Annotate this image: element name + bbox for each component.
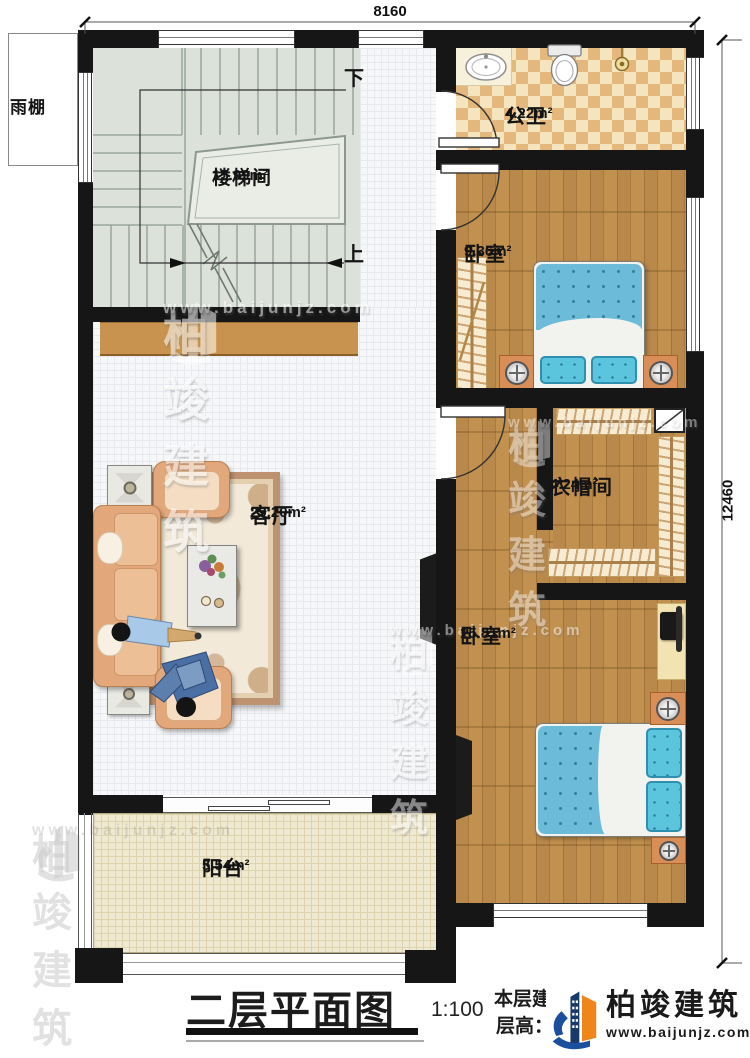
lamp-icon [505, 361, 529, 385]
bed-pillow [540, 356, 586, 384]
watermark-brand: 柏竣建筑 [32, 822, 78, 1054]
up-text: 上 [344, 244, 365, 266]
clothes-rack [556, 408, 652, 435]
balcony-railing [78, 813, 92, 953]
wall [686, 30, 704, 57]
window [158, 30, 295, 48]
sofa-pillow [97, 624, 123, 656]
wall [537, 583, 686, 600]
balcony-post [75, 948, 123, 983]
corner-shelf [654, 408, 685, 433]
armchair-cushion [164, 471, 220, 511]
wall [78, 795, 163, 813]
clothes-rack [658, 436, 685, 577]
window [493, 903, 648, 927]
hallway-floor [360, 48, 436, 322]
wall [686, 352, 704, 927]
drawing-scale: 1:100 [431, 998, 484, 1022]
window [78, 72, 93, 183]
wall [424, 30, 704, 48]
dimension-right: 12460 [720, 469, 737, 533]
bed-pillow [591, 356, 637, 384]
sliding-door-panel [268, 800, 330, 805]
bedroom2-floor [456, 408, 537, 903]
table-lamp-icon [123, 481, 136, 494]
desk [657, 603, 686, 680]
bed-sheet-fold [598, 726, 622, 834]
title-underline-thin [186, 1040, 424, 1042]
coffee-table [187, 545, 237, 627]
brand-logo-icon [546, 988, 602, 1052]
down-text: 下 [344, 68, 365, 90]
clothes-rack [548, 548, 656, 577]
armchair [153, 461, 230, 518]
wall [295, 30, 358, 48]
brand-url: www.baijunjz.com [606, 1024, 750, 1040]
brand-logo-icon [32, 822, 84, 884]
wall [436, 230, 456, 307]
bed-pillow [646, 781, 682, 832]
room-area: 4.22m² [505, 106, 553, 123]
lamp-icon [656, 697, 680, 721]
dimension-top: 8160 [355, 3, 425, 20]
wall [372, 795, 436, 813]
sliding-door-panel [208, 806, 270, 811]
wall [436, 388, 704, 408]
window [358, 30, 424, 48]
sofa-pillow [97, 532, 123, 564]
table-lamp-icon [123, 688, 135, 700]
lamp-icon [659, 841, 679, 861]
balcony-floor [93, 813, 437, 953]
armchair-cushion [166, 677, 222, 721]
wall [436, 48, 456, 92]
tv-bedroom-icon [456, 735, 472, 820]
wardrobe [457, 257, 487, 390]
lamp-icon [649, 361, 673, 385]
watermark: 柏竣建筑 www.baijunjz.com [32, 822, 84, 884]
end-table [107, 465, 152, 510]
wall [436, 903, 493, 927]
wall [78, 183, 93, 815]
bed-pillow [646, 728, 682, 778]
sliding-door [163, 797, 372, 813]
room-area: 15.99m² [212, 168, 268, 185]
armchair [155, 666, 232, 729]
tv-living-icon [420, 553, 437, 645]
sofa-cushion [114, 568, 158, 621]
wall [436, 150, 704, 170]
room-area: 29.20m² [250, 505, 306, 522]
room-area: 15.81m² [460, 626, 516, 643]
canopy-text: 雨棚 [10, 98, 46, 117]
speaker [676, 606, 682, 652]
wall [648, 903, 704, 927]
wall [436, 927, 456, 983]
window [686, 197, 704, 352]
window [686, 57, 704, 130]
wall [78, 30, 93, 72]
cabinet-band [100, 322, 358, 356]
balcony-railing [120, 953, 410, 975]
room-area: 4.24m² [550, 477, 598, 494]
floor-plan: 柏竣建筑 www.baijunjz.com 柏竣建筑 www.baijunjz.… [0, 0, 750, 1058]
title-underline [186, 1028, 418, 1035]
room-area: 5.54m² [202, 858, 250, 875]
wall [93, 307, 360, 322]
sofa [93, 505, 161, 687]
nightstand [499, 355, 534, 390]
nightstand [651, 837, 686, 864]
room-area: 9.36m² [464, 244, 512, 261]
wall [537, 408, 553, 530]
brand-logo: 柏竣建筑 www.baijunjz.com [546, 988, 750, 1054]
nightstand [650, 692, 686, 725]
bathroom-counter [456, 48, 512, 86]
brand-name: 柏竣建筑 [606, 988, 750, 1024]
nightstand [643, 355, 678, 390]
